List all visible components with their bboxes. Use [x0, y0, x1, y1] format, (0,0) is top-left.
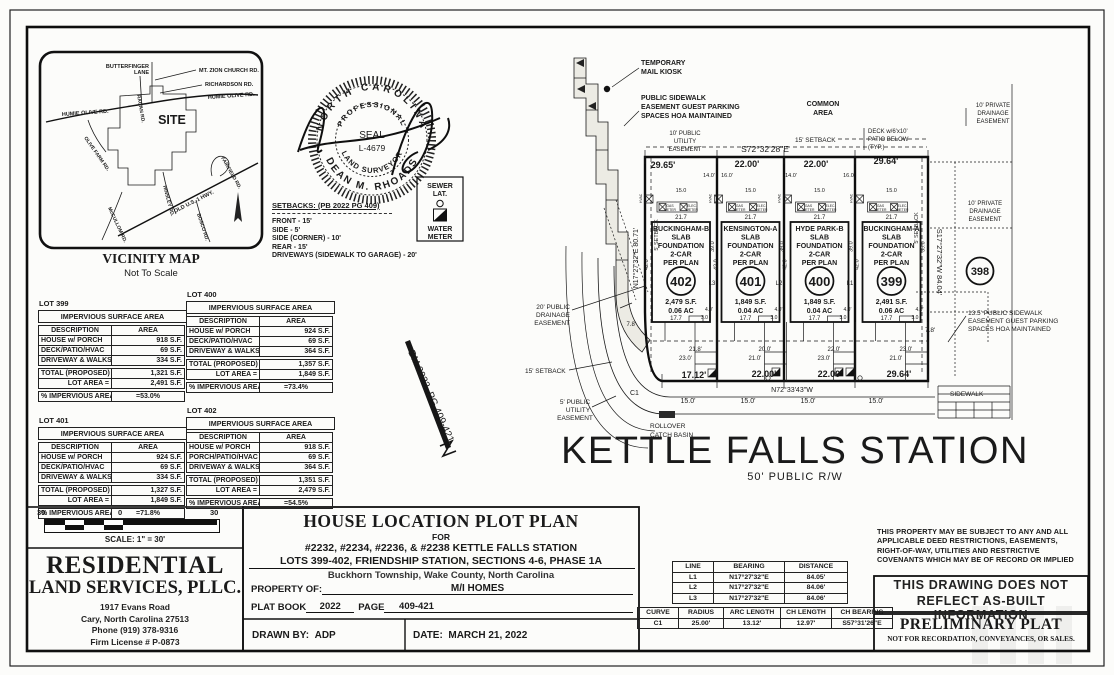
col-header: DISTANCE: [785, 562, 848, 573]
scale-tick-label: 30: [210, 508, 218, 517]
road-label: MT. ZION CHURCH RD.: [199, 68, 259, 74]
note-label: 20' PUBLIC: [536, 304, 570, 311]
lot-acreage: 0.04 AC: [738, 308, 763, 315]
property-of-label: PROPERTY OF:: [251, 584, 322, 595]
table-cell: N17°27'32"E: [714, 583, 785, 594]
dim-label: 22.00': [818, 369, 843, 379]
dim-label: 21.7: [745, 215, 757, 221]
dim-label: 15.0: [814, 188, 825, 194]
drive-dim: 22.0': [828, 347, 841, 353]
col-header: DESCRIPTION: [187, 433, 260, 443]
meter-label: METER: [825, 208, 837, 212]
firm-address: 1917 Evans Road: [27, 602, 243, 614]
col-header: AREA: [260, 433, 333, 443]
table-cell: 334 S.F.: [112, 473, 185, 483]
adjacent-lot-number: 398: [971, 266, 989, 278]
house-model: 2-CAR: [740, 252, 761, 259]
table-cell: =53.0%: [112, 392, 185, 402]
table-cell: 364 S.F.: [260, 463, 333, 473]
deed-disclaimer-line: COVENANTS WHICH MAY BE OF RECORD OR IMPL…: [877, 555, 1085, 564]
table-cell: 1,351 S.F.: [260, 476, 333, 486]
curve-table: CURVE RADIUS ARC LENGTH CH LENGTH CH BEA…: [637, 607, 893, 629]
catch-basin-icon: [659, 411, 675, 418]
setback-line: FRONT - 15': [272, 218, 450, 226]
table-cell: DRIVEWAY & WALKS: [187, 347, 260, 357]
street-name: KETTLE FALLS STATION: [561, 430, 1029, 472]
table-cell: DRIVEWAY & WALKS: [39, 356, 112, 366]
lot-number: 399: [881, 274, 903, 289]
property-of-value: M/I HOMES: [322, 583, 633, 595]
house-model: BUCKINGHAM-B: [653, 226, 709, 233]
table-cell: C1: [638, 618, 679, 629]
dim-label: 15.0': [681, 398, 696, 405]
road-label: HUMIE OLIVE RD.: [62, 109, 110, 118]
table-cell: TOTAL (PROPOSED) =: [187, 476, 260, 486]
plat-book-value: 2022: [306, 601, 354, 613]
road-label: LANE: [134, 70, 149, 76]
title-lots: LOTS 399-402, FRIENDSHIP STATION, SECTIO…: [243, 555, 639, 567]
vicinity-roads: [46, 62, 258, 242]
note-label: EASEMENT: [557, 415, 593, 422]
col-header: ARC LENGTH: [724, 608, 781, 619]
note-label: SIDEWALK: [950, 391, 984, 398]
firm-block: RESIDENTIAL LAND SERVICES, PLLC. 1917 Ev…: [27, 548, 243, 651]
bearing-label: N17°27'32"E 80.71': [632, 228, 640, 289]
house-model: HYDE PARK-B: [795, 226, 843, 233]
impervious-table-lot-401: LOT 401 IMPERVIOUS SURFACE AREA DESCRIPT…: [38, 416, 187, 519]
table-cell: HOUSE w/ PORCH: [187, 327, 260, 337]
dim-label: 42.0: [644, 259, 650, 270]
lot-area: 2,491 S.F.: [876, 299, 908, 306]
title-addresses: #2232, #2234, #2236, & #2238 KETTLE FALL…: [243, 542, 639, 554]
impervious-table-lot-402: LOT 402 IMPERVIOUS SURFACE AREA DESCRIPT…: [186, 406, 335, 509]
table-cell: 918 S.F.: [260, 443, 333, 453]
plat-drawing: 398 GAS METER ELEC. METER HVAC 15.0 21.7…: [525, 58, 1058, 483]
setbacks-note: SETBACKS: (PB 2022 PG 409) FRONT - 15' S…: [272, 202, 450, 260]
note-label: COMMON: [807, 101, 840, 108]
firm-name: RESIDENTIAL: [27, 552, 243, 580]
bearing-label: N72°33'43"W: [771, 386, 813, 394]
note-label: UTILITY: [566, 407, 591, 414]
house-model: SLAB: [882, 235, 901, 242]
road-label: BOSCO RD.: [195, 213, 210, 242]
table-cell: 84.06': [785, 583, 848, 594]
table-cell: HOUSE w/ PORCH: [39, 453, 112, 463]
note-label: 15' SETBACK: [525, 368, 566, 375]
table-cell: L2: [673, 583, 714, 594]
setback-line: DRIVEWAYS (SIDEWALK TO GARAGE) - 20': [272, 252, 450, 260]
meter-label: METER: [686, 208, 698, 212]
table-cell: 334 S.F.: [112, 356, 185, 366]
table-cell: 84.05': [785, 572, 848, 583]
setback-line: REAR - 15': [272, 244, 450, 252]
table-cell: 1,321 S.F.: [112, 369, 185, 379]
dim-label: 21.7: [675, 215, 687, 221]
plat-sheet: BUTTERFINGER LANE MT. ZION CHURCH RD. RI…: [0, 0, 1114, 675]
dim-label: 15.0': [869, 398, 884, 405]
drive-dim: 20.0': [759, 347, 772, 353]
col-header: AREA: [112, 326, 185, 336]
table-cell: 69 S.F.: [112, 346, 185, 356]
setback-line: SIDE - 5': [272, 227, 450, 235]
table-cell: 1,849 S.F.: [112, 496, 185, 506]
note-label: MAIL KIOSK: [641, 69, 682, 76]
dim-label: 16.0': [721, 173, 733, 179]
seal-license: L-4679: [359, 143, 386, 153]
lot-area: 2,479 S.F.: [665, 299, 697, 306]
dim-label: 42.0: [714, 259, 720, 270]
dim-label: 17.12': [682, 370, 707, 380]
dim-label: 42.0: [783, 259, 789, 270]
firm-name: LAND SERVICES, PLLC.: [27, 578, 243, 599]
page-value: 409-421: [384, 601, 448, 613]
table-cell: % IMPERVIOUS AREA: [39, 392, 112, 402]
table-cell: PORCH/PATIO/HVAC: [187, 453, 260, 463]
scale-caption: SCALE: 1" = 30': [27, 535, 243, 544]
col-header: DESCRIPTION: [39, 326, 112, 336]
hvac-label: HVAC: [639, 193, 643, 203]
table-cell: TOTAL (PROPOSED) =: [39, 486, 112, 496]
table-cell: TOTAL (PROPOSED) =: [39, 369, 112, 379]
note-label: DRAINAGE: [977, 111, 1008, 117]
hvac-label: HVAC: [850, 193, 854, 203]
table-cell: TOTAL (PROPOSED) =: [187, 360, 260, 370]
road-label: HUMIE OLIVE RD.: [208, 92, 256, 101]
road-label: OLD U.S. 1 HWY.: [173, 189, 215, 214]
col-header: AREA: [112, 443, 185, 453]
preliminary-plat-subtitle: NOT FOR RECORDATION, CONVEYANCES, OR SAL…: [874, 635, 1088, 643]
note-label: ROLLOVER: [650, 423, 686, 430]
note-label: (TYP.): [868, 145, 885, 151]
drawn-by-value: ADP: [315, 630, 336, 641]
street-rw-label: 50' PUBLIC R/W: [747, 471, 843, 483]
lot-table-label: LOT 402: [187, 406, 335, 415]
note-label: 15' SETBACK: [795, 137, 836, 144]
firm-address: Phone (919) 378-9316: [27, 625, 243, 637]
house-model: FOUNDATION: [868, 243, 914, 250]
road-label: RICHARDSON RD.: [205, 82, 254, 88]
table-title: IMPERVIOUS SURFACE AREA: [186, 417, 335, 430]
meter-label: METER: [756, 208, 768, 212]
col-header: CH LENGTH: [781, 608, 832, 619]
lot-table-label: LOT 400: [187, 290, 335, 299]
impervious-table-lot-400: LOT 400 IMPERVIOUS SURFACE AREA DESCRIPT…: [186, 290, 335, 393]
lot-area: 1,849 S.F.: [804, 299, 836, 306]
table-cell: DRIVEWAY & WALKS: [39, 473, 112, 483]
surveyor-seal: NORTH CAROLINA DEAN M. RHOADS PROFESSION…: [298, 80, 449, 200]
lot-number: 402: [670, 274, 692, 289]
table-cell: 25.00': [679, 618, 724, 629]
note-label: EASEMENT: [968, 217, 1001, 223]
house-model: SLAB: [741, 235, 760, 242]
benchmark-arrow: BM 2022, PG 409-421: [405, 340, 456, 456]
note-label: PATIO BELOW: [868, 137, 909, 143]
curve-ref-label: C1: [630, 390, 639, 397]
table-cell: N17°27'32"E: [714, 593, 785, 604]
meter-label: METER: [875, 208, 887, 212]
house-model: PER PLAN: [663, 260, 698, 267]
date-label: DATE:: [413, 630, 443, 641]
house-model: PER PLAN: [874, 260, 909, 267]
setbacks-heading: SETBACKS: (PB 2022 PG 409): [272, 202, 450, 210]
dim-label: 4.0': [844, 307, 852, 313]
impervious-table-lot-399: LOT 399 IMPERVIOUS SURFACE AREA DESCRIPT…: [38, 299, 187, 402]
lot-number: 400: [809, 274, 831, 289]
legend-label: SEWER: [427, 183, 453, 190]
dim-label: 22.00': [804, 159, 829, 169]
house-model: 2-CAR: [881, 252, 902, 259]
preliminary-plat-title: PRELIMINARY PLAT: [874, 616, 1088, 634]
setback-line: SIDE (CORNER) - 10': [272, 235, 450, 243]
drive-dim: 23.0': [818, 356, 831, 362]
note-label: SPACES HOA MAINTAINED: [968, 326, 1051, 333]
dim-label: 4.0': [775, 307, 783, 313]
table-title: IMPERVIOUS SURFACE AREA: [38, 310, 187, 323]
dim-label: 4.0': [705, 307, 713, 313]
firm-address: Cary, North Carolina 27513: [27, 614, 243, 626]
guest-parking-strip: [574, 58, 650, 352]
title-block: HOUSE LOCATION PLOT PLAN FOR #2232, #223…: [243, 507, 639, 651]
table-cell: 364 S.F.: [260, 347, 333, 357]
legend-label: LAT.: [433, 191, 447, 198]
table-cell: LOT AREA =: [187, 486, 260, 496]
note-label: 5' SETBACK: [654, 219, 660, 251]
benchmark-label: BM 2022, PG 409-421: [405, 349, 456, 445]
dim-label: 39.0: [921, 241, 927, 252]
line-ref-label: L3: [709, 281, 716, 287]
meter-label: METER: [803, 208, 815, 212]
vicinity-title: VICINITY MAP: [102, 251, 199, 266]
table-cell: N17°27'32"E: [714, 572, 785, 583]
house-model: 2-CAR: [670, 252, 691, 259]
house-model: FOUNDATION: [796, 243, 842, 250]
table-cell: 69 S.F.: [260, 453, 333, 463]
road-label: RAGAN RD.: [135, 94, 146, 124]
dim-label: 39.0: [849, 241, 855, 252]
dim-label: 17.7: [670, 316, 682, 322]
dim-label: 17.7: [809, 316, 821, 322]
dim-label: 15.0': [801, 398, 816, 405]
asbuilt-notice: THIS DRAWING DOES NOT REFLECT AS-BUILT I…: [874, 576, 1088, 612]
col-header: LINE: [673, 562, 714, 573]
note-label: DRAINAGE: [969, 209, 1000, 215]
road-label: OLIVE FARM RD.: [82, 136, 111, 173]
note-label: 10' PRIVATE: [968, 201, 1002, 207]
deed-disclaimer-line: THIS PROPERTY MAY BE SUBJECT TO ANY AND …: [877, 527, 1085, 536]
scale-bar: [44, 519, 220, 533]
plat-book-label: PLAT BOOK: [251, 602, 306, 613]
col-header: CURVE: [638, 608, 679, 619]
table-cell: 69 S.F.: [112, 463, 185, 473]
dim-label: 7.8': [627, 322, 637, 328]
dim-label: 29.65': [651, 160, 676, 170]
house-model: FOUNDATION: [658, 243, 704, 250]
scale-bar-block: 30 0 30 SCALE: 1" = 30': [27, 507, 243, 548]
col-header: RADIUS: [679, 608, 724, 619]
line-ref-label: L1: [847, 281, 854, 287]
drive-dim: 23.0': [900, 347, 913, 353]
meter-label: METER: [664, 208, 676, 212]
note-label: DECK w/6'x10': [868, 129, 908, 135]
table-cell: 13.12': [724, 618, 781, 629]
note-label: EASEMENT: [976, 119, 1009, 125]
scale-tick-label: 0: [118, 508, 122, 517]
mail-kiosk-icon: [604, 86, 610, 92]
house-model: KENSINGTON-A: [724, 226, 778, 233]
table-title: IMPERVIOUS SURFACE AREA: [38, 427, 187, 440]
dim-label: 14.0': [703, 173, 715, 179]
leader-lines: [569, 286, 645, 407]
table-cell: 69 S.F.: [260, 337, 333, 347]
divider: [249, 568, 635, 569]
table-cell: 918 S.F.: [112, 336, 185, 346]
drive-dim: 21.0': [749, 356, 762, 362]
lot-area: 1,849 S.F.: [735, 299, 767, 306]
table-cell: 2,479 S.F.: [260, 486, 333, 496]
lot-table-label: LOT 399: [39, 299, 187, 308]
note-label: UTILITY: [674, 139, 696, 145]
lot-acreage: 0.04 AC: [807, 308, 832, 315]
table-cell: HOUSE w/ PORCH: [187, 443, 260, 453]
note-label: AREA: [813, 110, 833, 117]
hvac-label: HVAC: [778, 193, 782, 203]
table-cell: 2,491 S.F.: [112, 379, 185, 389]
house-model: FOUNDATION: [727, 243, 773, 250]
house-model: BUCKINGHAM-A: [864, 226, 920, 233]
line-ref-label: L2: [776, 281, 783, 287]
table-cell: 1,357 S.F.: [260, 360, 333, 370]
north-arrow-icon: [234, 192, 242, 222]
table-cell: 1,327 S.F.: [112, 486, 185, 496]
bearing-label: S17°27'32"W 84.04': [935, 229, 944, 296]
divider: [272, 213, 392, 214]
note-label: DRAINAGE: [536, 312, 571, 319]
scale-tick-label: 30: [37, 508, 45, 517]
table-title: IMPERVIOUS SURFACE AREA: [186, 301, 335, 314]
dim-label: 16.0': [843, 173, 855, 179]
dim-label: 22.00': [735, 159, 760, 169]
deed-disclaimer-line: APPLICABLE DEED RESTRICTIONS, EASEMENTS,: [877, 536, 1085, 545]
col-header: AREA: [260, 317, 333, 327]
table-cell: % IMPERVIOUS AREA: [187, 383, 260, 393]
dim-label: 15.0: [745, 188, 756, 194]
note-label: 10' PUBLIC: [669, 131, 701, 137]
house-model: SLAB: [810, 235, 829, 242]
note-label: 5' SETBACK: [914, 212, 920, 244]
house-model: PER PLAN: [802, 260, 837, 267]
dim-label: 29.64': [887, 369, 912, 379]
note-label: EASEMENT: [534, 320, 570, 327]
drawn-by-label: DRAWN BY:: [252, 630, 309, 641]
lot-acreage: 0.06 AC: [879, 308, 904, 315]
leader-lines: [612, 68, 639, 126]
dim-label: 39.0: [780, 241, 786, 252]
dim-label: 15.0: [886, 188, 897, 194]
preliminary-plat-notice: PRELIMINARY PLAT NOT FOR RECORDATION, CO…: [874, 614, 1088, 651]
title-for: FOR: [243, 532, 639, 542]
title-block-bottom-row: DRAWN BY: ADP DATE: MARCH 21, 2022: [243, 619, 639, 651]
table-cell: L1: [673, 572, 714, 583]
sheet-title: HOUSE LOCATION PLOT PLAN: [243, 511, 639, 532]
house-model: PER PLAN: [733, 260, 768, 267]
table-cell: 84.06': [785, 593, 848, 604]
note-label: TEMPORARY: [641, 60, 686, 67]
table-cell: =73.4%: [260, 383, 333, 393]
hvac-label: HVAC: [709, 193, 713, 203]
table-cell: 12.97': [781, 618, 832, 629]
lot-acreage: 0.06 AC: [668, 308, 693, 315]
table-cell: LOT AREA =: [39, 496, 112, 506]
dim-label: 21.7: [886, 215, 898, 221]
title-township: Buckhorn Township, Wake County, North Ca…: [243, 570, 639, 581]
table-cell: HOUSE w/ PORCH: [39, 336, 112, 346]
dim-label: 17.7: [740, 316, 752, 322]
table-cell: 924 S.F.: [112, 453, 185, 463]
note-label: 10' PRIVATE: [976, 103, 1010, 109]
table-cell: LOT AREA =: [187, 370, 260, 380]
dim-label: 14.0': [785, 173, 797, 179]
firm-address: Firm License # P-0873: [27, 637, 243, 649]
table-cell: L3: [673, 593, 714, 604]
lot-number: 401: [740, 274, 762, 289]
note-label: PUBLIC SIDEWALK: [641, 95, 706, 102]
table-cell: DECK/PATIO/HVAC: [39, 346, 112, 356]
col-header: DESCRIPTION: [39, 443, 112, 453]
drive-dim: 21.0': [890, 356, 903, 362]
dim-label: 7.8': [925, 327, 935, 334]
house-model: 2-CAR: [809, 252, 830, 259]
table-cell: DECK/PATIO/HVAC: [39, 463, 112, 473]
road-label: McCULLOM RD.: [106, 206, 128, 244]
table-cell: LOT AREA =: [39, 379, 112, 389]
table-cell: 1,849 S.F.: [260, 370, 333, 380]
note-label: EASEMENT GUEST PARKING: [968, 318, 1058, 325]
col-header: DESCRIPTION: [187, 317, 260, 327]
note-label: 5' PUBLIC: [560, 399, 590, 406]
drive-dim: 23.0': [679, 356, 692, 362]
bearing-label: S72°32'28"E: [741, 144, 789, 154]
col-header: BEARING: [714, 562, 785, 573]
note-label: EASEMENT GUEST PARKING: [641, 104, 740, 111]
dim-label: 4.0': [916, 307, 924, 313]
drive-dim: 21.8': [689, 347, 702, 353]
lot-400: GAS METER ELEC. METER HVAC 15.0 21.7 HYD…: [778, 188, 856, 381]
table-cell: DECK/PATIO/HVAC: [187, 337, 260, 347]
page-label: PAGE: [358, 602, 384, 613]
dim-label: 29.64': [874, 156, 899, 166]
deed-disclaimer: THIS PROPERTY MAY BE SUBJECT TO ANY AND …: [877, 527, 1085, 565]
asbuilt-line: THIS DRAWING DOES NOT: [874, 578, 1088, 592]
lot-table-label: LOT 401: [39, 416, 187, 425]
meter-label: METER: [734, 208, 746, 212]
dim-label: 21.7: [814, 215, 826, 221]
line-table: LINE BEARING DISTANCE L1N17°27'32"E84.05…: [672, 561, 848, 604]
dim-label: 17.7: [881, 316, 893, 322]
vicinity-subtitle: Not To Scale: [124, 268, 178, 279]
note-label: SPACES HOA MAINTAINED: [641, 113, 732, 120]
dim-label: 22.00': [752, 369, 777, 379]
deed-disclaimer-line: RIGHT-OF-WAY, UTILITIES AND RESTRICTIVE: [877, 546, 1085, 555]
dim-label: 42.0: [855, 259, 861, 270]
dim-label: 15.0: [676, 188, 687, 194]
table-cell: 924 S.F.: [260, 327, 333, 337]
house-model: SLAB: [671, 235, 690, 242]
date-value: MARCH 21, 2022: [448, 630, 527, 641]
site-label: SITE: [158, 113, 186, 127]
meter-label: METER: [897, 208, 909, 212]
note-label: 13.5' PUBLIC SIDEWALK: [968, 310, 1043, 317]
vicinity-map: BUTTERFINGER LANE MT. ZION CHURCH RD. RI…: [40, 52, 262, 279]
